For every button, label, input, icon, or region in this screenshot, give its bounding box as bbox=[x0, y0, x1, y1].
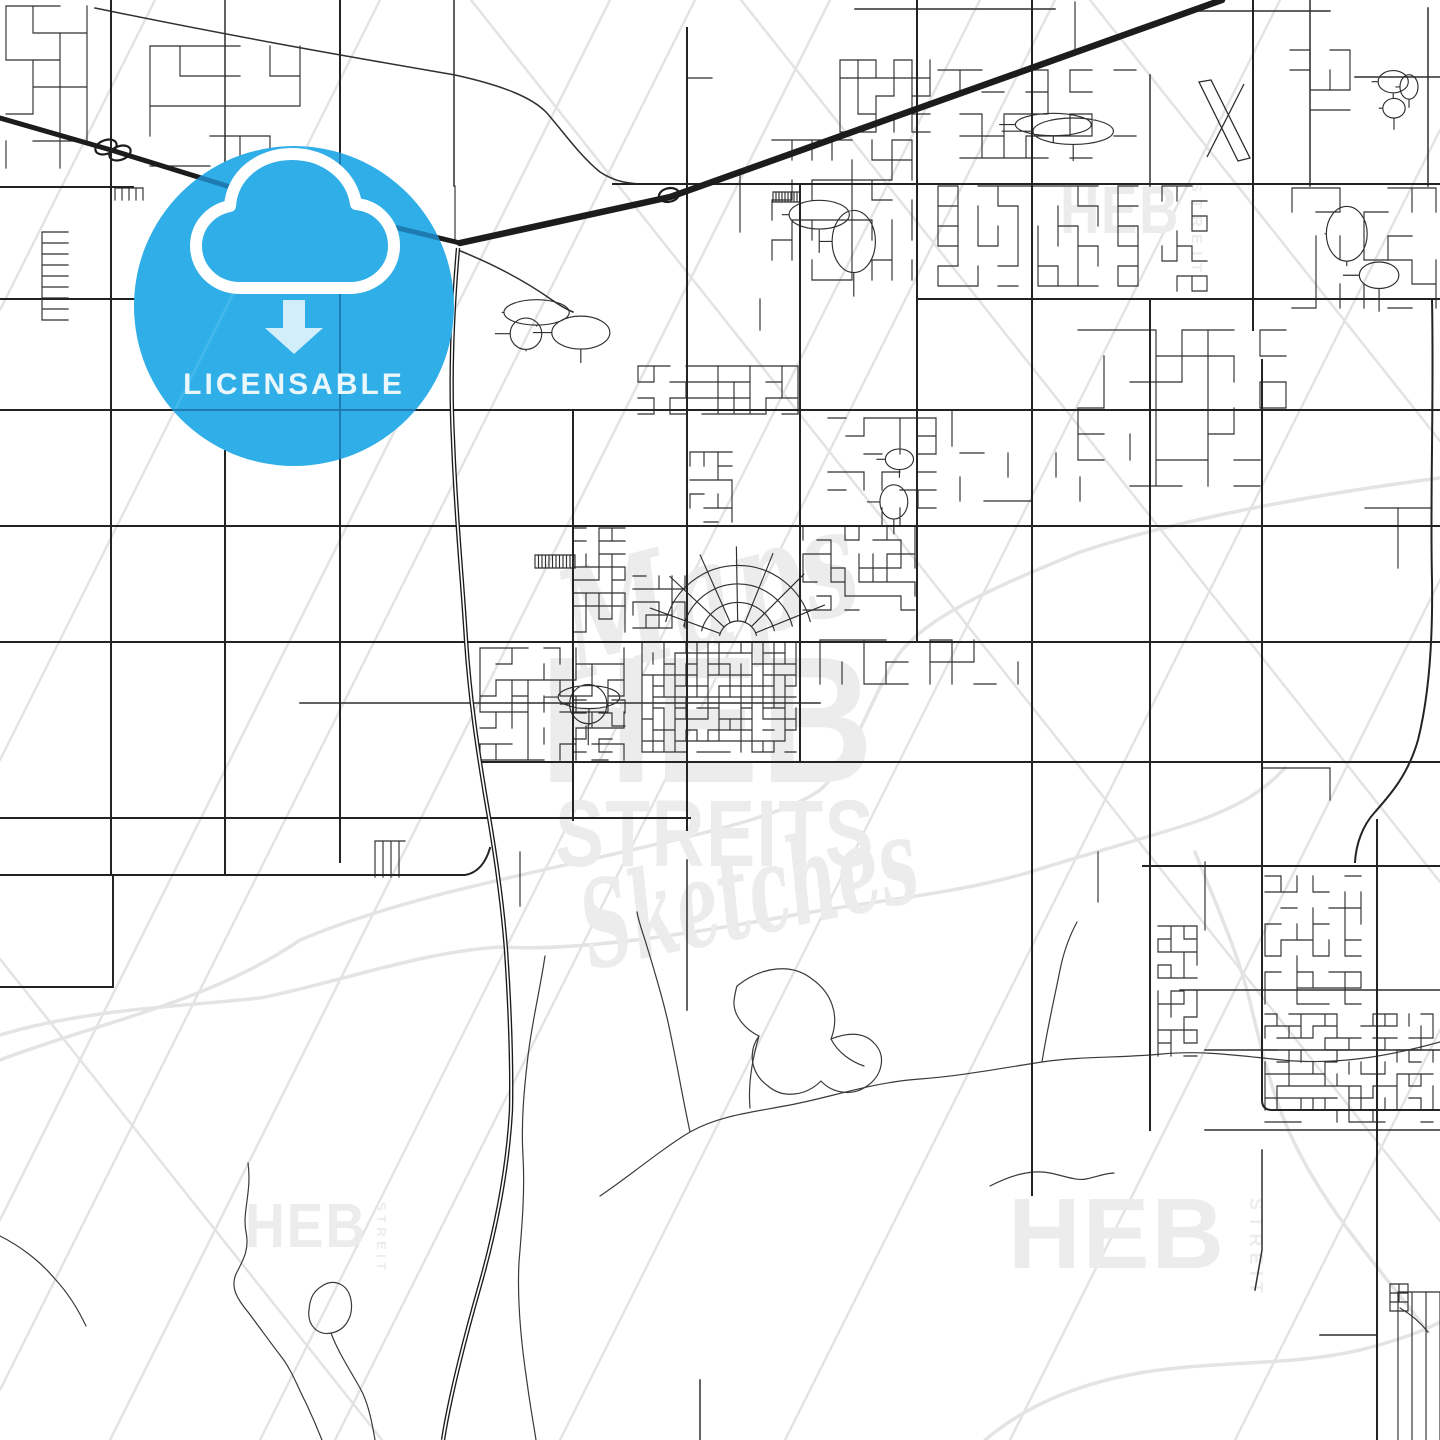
watermark-heb-bottomleft: HEB bbox=[245, 1192, 367, 1261]
watermark-heb-bottomright: HEB bbox=[1008, 1178, 1226, 1290]
badge-label: LICENSABLE bbox=[183, 368, 405, 401]
watermark-streit-bottomleft: STREIT bbox=[374, 1202, 389, 1272]
watermark-streit-topright: STREIT bbox=[1188, 182, 1205, 274]
map-canvas: HEB STREIT Maps HEB STREITS Sketches HEB… bbox=[0, 0, 1440, 1440]
map-preview: HEB STREIT Maps HEB STREITS Sketches HEB… bbox=[0, 0, 1440, 1440]
creek-lines bbox=[0, 912, 1440, 1440]
highway-line bbox=[443, 248, 511, 1440]
